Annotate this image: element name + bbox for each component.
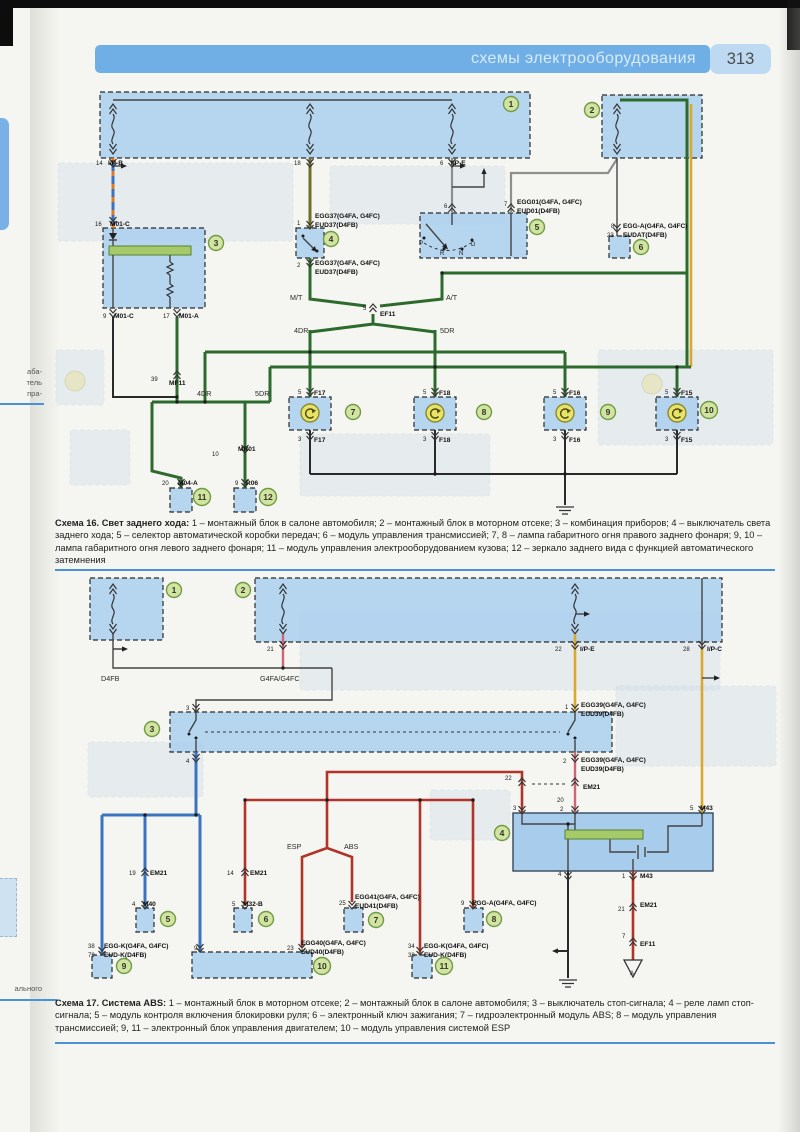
wire-label: 1 xyxy=(565,705,569,711)
wire-label: EGG41(G4FA, G4FC) xyxy=(355,894,420,901)
wire-label: 5 xyxy=(423,390,427,396)
wire-label: M04-A xyxy=(178,480,198,487)
component-callout-number: 10 xyxy=(704,405,714,415)
component-box-5-steering-lock-module xyxy=(136,908,154,932)
component-box-1-engine-junction-block xyxy=(90,578,163,640)
wire-label: F16 xyxy=(569,390,581,397)
wire-label: EM21 xyxy=(640,902,658,909)
wire-label: EUDAT(D4FB) xyxy=(623,232,667,239)
wire-label: 38 xyxy=(88,944,95,950)
wire-label: EGG-A(G4FA, G4FC) xyxy=(472,900,536,907)
wire-label: M40 xyxy=(143,901,156,908)
wire-label: 16 xyxy=(95,222,102,228)
wire-label: EM21 xyxy=(583,784,601,791)
wire-label: EGG01(G4FA, G4FC) xyxy=(517,199,582,206)
wire-label: EGG37(G4FA, G4FC) xyxy=(315,213,380,220)
wire-label: ESP xyxy=(287,842,302,851)
wire-label: P xyxy=(419,241,423,247)
component-box-11-body-control-module xyxy=(170,488,192,512)
wire-label: 5 xyxy=(232,902,236,908)
wire-label: 2 xyxy=(560,807,564,813)
diagram17-caption: Схема 17. Система ABS: 1 – монтажный бло… xyxy=(55,997,775,1034)
component-callout-number: 3 xyxy=(214,238,219,248)
component-box-4-reverse-light-switch xyxy=(296,228,324,258)
wire-label: 5 xyxy=(690,806,694,812)
component-callout-number: 9 xyxy=(606,407,611,417)
wire-label: EUD39(D4FB) xyxy=(581,711,624,718)
wire-label: 21 xyxy=(267,647,274,653)
wire-label: 17 xyxy=(163,314,170,320)
wire-label: 3 xyxy=(513,806,517,812)
component-callout-number: 7 xyxy=(374,915,379,925)
wire-label: D xyxy=(471,242,476,248)
component-callout-number: 3 xyxy=(150,724,155,734)
wire-label: EM21 xyxy=(250,870,268,877)
wire-label: F18 xyxy=(439,437,451,444)
wire-label: EGG39(G4FA, G4FC) xyxy=(581,702,646,709)
wire-label: EUD41(D4FB) xyxy=(355,903,398,910)
component-box-12-auto-dim-mirror xyxy=(234,488,256,512)
component-callout-number: 12 xyxy=(263,492,273,502)
wire-label: 38 xyxy=(408,953,415,959)
component-callout-number: 2 xyxy=(590,105,595,115)
wire-label: 22 xyxy=(555,647,562,653)
wire-label: 20 xyxy=(557,798,564,804)
wire-label: 10 xyxy=(212,452,219,458)
lamp-icon xyxy=(426,404,444,422)
wire-label: EF11 xyxy=(380,311,396,318)
wire-label: M32-B xyxy=(243,901,263,908)
wire-label: 34 xyxy=(408,944,415,950)
component-callout-number: 8 xyxy=(492,914,497,924)
lamp-icon xyxy=(668,404,686,422)
wire-label: 4 xyxy=(558,872,562,878)
wire-label: M01-A xyxy=(179,313,199,320)
wire-label: 7 xyxy=(622,934,626,940)
wire-label: EGG-A(G4FA, G4FC) xyxy=(623,223,687,230)
wire-label: 18 xyxy=(294,161,301,167)
wire-label: MR01 xyxy=(238,446,256,453)
component-callout-number: 2 xyxy=(241,585,246,595)
diagram17-caption-lead: Схема 17. Система ABS: xyxy=(55,998,166,1008)
component-callout-number: 8 xyxy=(482,407,487,417)
component-callout-number: 9 xyxy=(122,961,127,971)
wire-label: 9 xyxy=(235,481,239,487)
wire-label: I/P-E xyxy=(580,646,595,653)
wire-label: 79 xyxy=(88,953,95,959)
wire-label: N xyxy=(459,251,463,257)
component-callout-number: 1 xyxy=(509,99,514,109)
component-callout-number: 10 xyxy=(317,961,327,971)
diagram16-caption-lead: Схема 16. Свет заднего хода: xyxy=(55,518,189,528)
wire-label: 1 xyxy=(622,874,626,880)
wire-label: EUD40(D4FB) xyxy=(301,949,344,956)
component-callout-number: 4 xyxy=(500,828,505,838)
wire-label: M01-C xyxy=(110,221,130,228)
wire-label: EUD01(D4FB) xyxy=(517,208,560,215)
wire-label: 7 xyxy=(504,202,508,208)
component-callout-number: 7 xyxy=(351,407,356,417)
component-callout-number: 4 xyxy=(329,234,334,244)
wire-label: 25 xyxy=(339,901,346,907)
wire-label: 39 xyxy=(151,377,158,383)
wire-label: M/T xyxy=(290,293,303,302)
wire-label: 4DR xyxy=(294,326,308,335)
wire-label: F17 xyxy=(314,437,326,444)
component-callout-number: 11 xyxy=(198,492,207,502)
component-box-8-transmission-module xyxy=(464,908,483,932)
wire-label: EUD37(D4FB) xyxy=(315,222,358,229)
wire-label: 4 xyxy=(132,902,136,908)
component-box-10-esp-module xyxy=(192,952,312,978)
wire-label: I/P-E xyxy=(451,160,466,167)
component-box-3-instrument-cluster xyxy=(103,228,205,308)
scanned-manual-page: { "header": { "title": "схемы электрообо… xyxy=(0,0,800,1132)
wire-label: D4FB xyxy=(101,674,120,683)
wire-label: 5DR xyxy=(255,389,269,398)
wire-label: F15 xyxy=(681,390,693,397)
wire-label: 4DR xyxy=(197,389,211,398)
wire-label: EGG40(G4FA, G4FC) xyxy=(301,940,366,947)
wire-label: G4FA/G4FC xyxy=(260,674,300,683)
component-callout-number: 5 xyxy=(535,222,540,232)
wire-label: 19 xyxy=(129,871,136,877)
component-callout-number: 1 xyxy=(172,585,177,595)
wire-label: 2 xyxy=(563,759,567,765)
wire-label: M43 xyxy=(700,805,713,812)
wire-label: M43 xyxy=(640,873,653,880)
lamp-icon xyxy=(556,404,574,422)
wire-label: R xyxy=(440,251,445,257)
wire-label: 5 xyxy=(298,390,302,396)
caption-rule xyxy=(55,569,775,571)
component-box-6-transmission-module xyxy=(609,236,630,258)
wire-label: A xyxy=(630,971,634,977)
component-box-2-cabin-junction-block xyxy=(255,578,722,642)
wire-label: 3 xyxy=(553,437,557,443)
wire-label: 23 xyxy=(607,233,614,239)
wire-label: EGG-K(G4FA, G4FC) xyxy=(104,943,168,950)
wire-label: M01-C xyxy=(114,313,134,320)
wire-label: 23 xyxy=(287,946,294,952)
wire-label: F15 xyxy=(681,437,693,444)
wire-label: EM21 xyxy=(150,870,168,877)
component-box-7-abs-module xyxy=(344,908,363,932)
wire-label: ABS xyxy=(344,842,359,851)
lamp-icon xyxy=(301,404,319,422)
wire-label: F17 xyxy=(314,390,326,397)
wire-label: 22 xyxy=(505,776,512,782)
component-callout-number: 11 xyxy=(440,961,449,971)
wire-label: 9 xyxy=(103,314,107,320)
wire-label: 21 xyxy=(618,907,625,913)
wire-label: 5DR xyxy=(440,326,454,335)
wire-label: EGG39(G4FA, G4FC) xyxy=(581,757,646,764)
wire-label: I/P-C xyxy=(707,646,722,653)
wire-label: 5 xyxy=(363,306,367,312)
wire-label: A/T xyxy=(446,293,458,302)
wire-label: EGG-K(G4FA, G4FC) xyxy=(424,943,488,950)
component-box-6-ignition-key xyxy=(234,908,252,932)
wire-label: 2 xyxy=(297,263,301,269)
wire-label: 1 xyxy=(297,221,301,227)
component-box-4-stop-lamp-relay xyxy=(513,813,713,871)
wire-label: EUD37(D4FB) xyxy=(315,269,358,276)
diagram16-caption: Схема 16. Свет заднего хода: 1 – монтажн… xyxy=(55,517,775,566)
wire-label: 14 xyxy=(96,161,103,167)
wire-label: F16 xyxy=(569,437,581,444)
wire-label: MF11 xyxy=(169,380,186,387)
component-callout-number: 6 xyxy=(264,914,269,924)
wire-label: EF11 xyxy=(640,941,656,948)
wire-label: I/P-B xyxy=(108,160,123,167)
wire-label: R06 xyxy=(246,480,258,487)
wire-label: EUD39(D4FB) xyxy=(581,766,624,773)
wire-label: 5 xyxy=(553,390,557,396)
component-callout-number: 6 xyxy=(639,242,644,252)
caption-rule xyxy=(55,1042,775,1044)
wire-label: 9 xyxy=(461,901,465,907)
component-box-1-cabin-junction-block xyxy=(100,92,530,158)
wire-label: 3 xyxy=(186,706,190,712)
wire-label: EGG37(G4FA, G4FC) xyxy=(315,260,380,267)
wire-label: F18 xyxy=(439,390,451,397)
wire-label: 28 xyxy=(683,647,690,653)
wire-label: 14 xyxy=(227,871,234,877)
wire-label: 20 xyxy=(162,481,169,487)
component-callout-number: 5 xyxy=(166,914,171,924)
